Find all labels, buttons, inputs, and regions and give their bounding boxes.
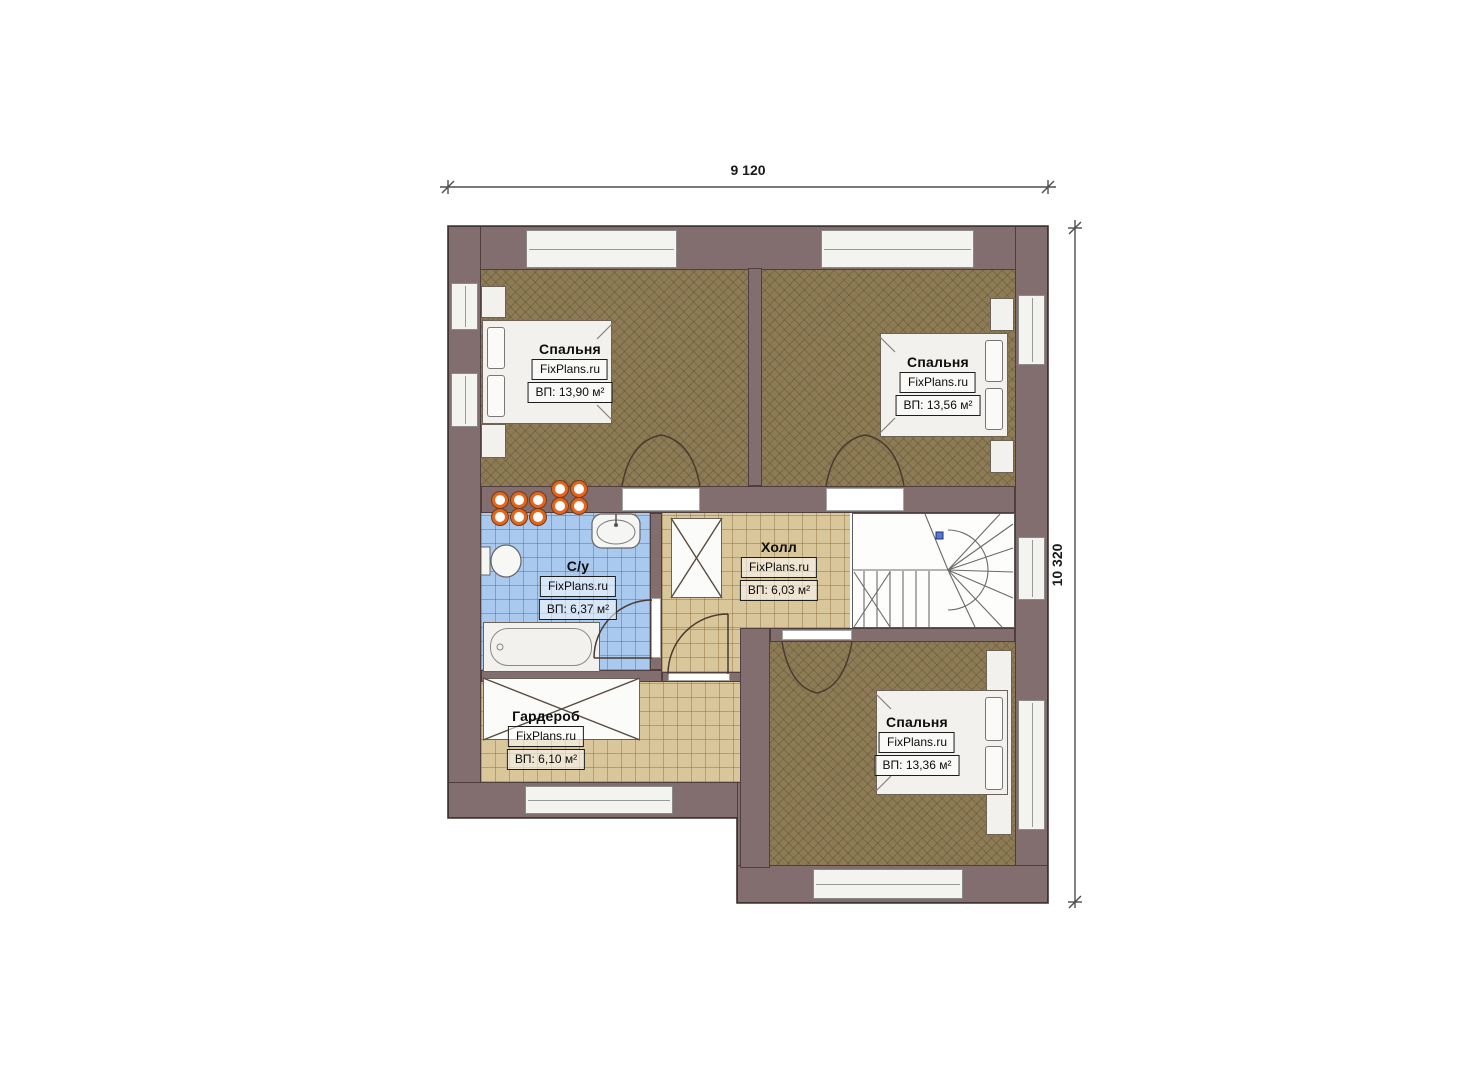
pillow — [985, 697, 1003, 741]
room-label-hall: Холл FixPlans.ru ВП: 6,03 м² — [740, 539, 818, 601]
room-name: С/у — [567, 558, 589, 574]
door-threshold — [668, 673, 730, 681]
brand-box: FixPlans.ru — [900, 372, 976, 393]
brand-box: FixPlans.ru — [508, 726, 584, 747]
brand-box: FixPlans.ru — [540, 576, 616, 597]
door-threshold — [782, 630, 852, 640]
pillow — [487, 375, 505, 417]
pillow — [985, 388, 1003, 430]
window — [821, 230, 974, 268]
nightstand — [481, 424, 506, 458]
room-label-bedroom-top-left: Спальня FixPlans.ru ВП: 13,90 м² — [528, 341, 613, 403]
room-name: Спальня — [539, 341, 601, 357]
room-label-wardrobe: Гардероб FixPlans.ru ВП: 6,10 м² — [507, 708, 585, 770]
window — [1018, 700, 1045, 830]
brand-box: FixPlans.ru — [879, 732, 955, 753]
door-threshold — [826, 488, 904, 511]
room-name: Холл — [761, 539, 797, 555]
towel-radiator-icon — [552, 481, 568, 514]
window — [526, 230, 677, 268]
window — [1018, 537, 1045, 600]
nightstand — [990, 298, 1014, 331]
area-box: ВП: 13,90 м² — [528, 382, 613, 403]
window — [1018, 295, 1045, 365]
area-box: ВП: 6,37 м² — [539, 599, 617, 620]
wall-bedroom3-west — [740, 628, 770, 868]
room-name: Спальня — [886, 714, 948, 730]
dimension-line-horizontal — [440, 180, 1056, 194]
room-label-bedroom-bottom-right: Спальня FixPlans.ru ВП: 13,36 м² — [875, 714, 960, 776]
brand-box: FixPlans.ru — [741, 557, 817, 578]
bathtub-basin — [490, 628, 592, 666]
wall-between-bedrooms — [748, 268, 762, 486]
room-label-bathroom: С/у FixPlans.ru ВП: 6,37 м² — [539, 558, 617, 620]
towel-radiator-icon — [571, 481, 587, 514]
window — [451, 373, 478, 427]
door-threshold — [651, 598, 661, 658]
pillow — [487, 327, 505, 369]
towel-radiator-icon — [530, 492, 546, 525]
pillow — [985, 340, 1003, 382]
dimension-line-vertical — [1068, 220, 1082, 908]
area-box: ВП: 6,10 м² — [507, 749, 585, 770]
room-label-bedroom-top-right: Спальня FixPlans.ru ВП: 13,56 м² — [896, 354, 981, 416]
window — [525, 786, 673, 814]
towel-radiator-icon — [511, 492, 527, 525]
room-name: Гардероб — [512, 708, 580, 724]
window — [813, 869, 963, 899]
staircase — [852, 513, 1015, 628]
hall-wardrobe-symbol — [671, 518, 722, 598]
nightstand — [481, 286, 506, 318]
area-box: ВП: 13,56 м² — [896, 395, 981, 416]
nightstand — [990, 440, 1014, 473]
brand-box: FixPlans.ru — [532, 359, 608, 380]
bathtub — [483, 622, 600, 672]
window — [451, 283, 478, 330]
area-box: ВП: 6,03 м² — [740, 580, 818, 601]
area-box: ВП: 13,36 м² — [875, 755, 960, 776]
floor-hall-notch — [662, 628, 742, 672]
dimension-label-height: 10 320 — [1049, 544, 1065, 587]
pillow — [985, 746, 1003, 790]
door-threshold — [622, 488, 700, 511]
towel-radiator-icon — [492, 492, 508, 525]
room-name: Спальня — [907, 354, 969, 370]
dimension-label-width: 9 120 — [730, 162, 765, 178]
floor-plan-canvas: 9 120 10 320 Спальня FixPlans.ru ВП: 13,… — [0, 0, 1474, 1080]
